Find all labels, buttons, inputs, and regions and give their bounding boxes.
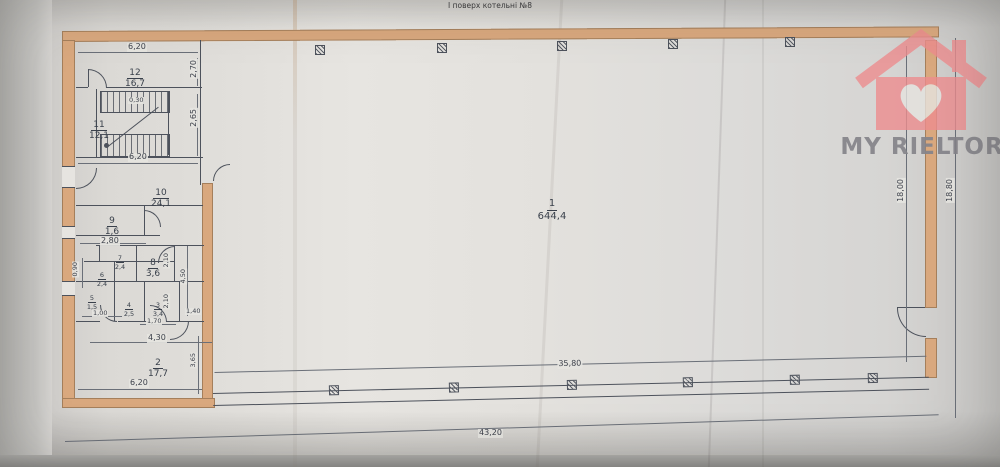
wall-right-lower (925, 338, 937, 378)
house-heart-icon (846, 26, 996, 134)
dimension-label: 4,50 (180, 268, 187, 284)
room-number: 2 (153, 358, 163, 369)
column-marker (790, 375, 800, 385)
dimension-label: 0,90 (72, 261, 79, 277)
room-label-3: 3 3,4 (145, 293, 171, 319)
room-area: 2,4 (90, 281, 114, 288)
wall-opening (62, 226, 75, 239)
paper-crease (293, 0, 297, 467)
room-area: 16,7 (119, 79, 151, 89)
room-area: 644,4 (528, 211, 576, 223)
dimension-label: 2,65 (190, 108, 199, 128)
dimension-label: 4,30 (147, 334, 167, 343)
dimension-label: 0,30 (128, 97, 144, 104)
dimension-line (187, 246, 188, 316)
column-marker (785, 37, 795, 47)
wall-opening (62, 281, 75, 296)
room-label-8: 8 3,6 (140, 251, 166, 280)
room-area: 24,1 (144, 199, 178, 209)
dimension-line (78, 52, 198, 53)
wall-line (76, 87, 88, 88)
stair-edge (168, 91, 169, 155)
room-number: 5 (88, 295, 96, 303)
photo-bottom-edge (0, 455, 1000, 467)
dimension-label: 18,80 (946, 178, 955, 203)
room-area: 3,6 (140, 269, 166, 279)
dimension-label: 43,20 (478, 429, 503, 438)
room-number: 10 (153, 188, 168, 199)
column-marker (683, 377, 693, 387)
dimension-label: 6,20 (127, 43, 147, 52)
dimension-label: 35,80 (557, 360, 582, 369)
wall-line (99, 245, 100, 261)
door-leaf (88, 69, 89, 87)
dimension-line (78, 389, 202, 390)
room-area: 1,5 (80, 304, 104, 311)
room-area: 1,6 (97, 227, 127, 237)
wall-left (62, 40, 75, 400)
dimension-label: 6,20 (128, 153, 148, 162)
room-label-1: 1 644,4 (528, 192, 576, 222)
room-number: 3 (154, 302, 162, 310)
dimension-line (82, 258, 83, 288)
wall-line (200, 40, 201, 185)
dimension-label: 18,00 (897, 178, 906, 203)
column-marker (868, 373, 878, 383)
paper-crease (762, 0, 764, 467)
wall-line (179, 281, 180, 321)
watermark-brand-text: MY RIELTOR (836, 134, 1000, 160)
dimension-label: 2,70 (190, 59, 199, 79)
column-marker (449, 382, 459, 392)
wall-block-right (202, 183, 213, 399)
wall-line (76, 321, 100, 322)
door-arc (88, 69, 107, 88)
room-number: 6 (98, 272, 106, 280)
room-label-7: 7 2,4 (108, 246, 132, 272)
wall-line (76, 205, 203, 206)
room-number: 4 (125, 302, 133, 310)
door-arc (76, 168, 97, 189)
dimension-label: 1,40 (185, 308, 201, 315)
room-label-12: 12 16,7 (119, 61, 151, 90)
dimension-label: 6,20 (129, 379, 149, 388)
door-arc (213, 164, 230, 181)
room-label-5: 5 1,5 (80, 286, 104, 312)
column-marker (437, 43, 447, 53)
dimension-label: 1,70 (146, 318, 162, 325)
room-area: 17,7 (140, 369, 176, 379)
hall-bottom-boundary: 35,80 (213, 377, 929, 394)
dimension-label: 2,80 (100, 237, 120, 246)
room-area: 2,5 (117, 311, 141, 318)
wall-opening (62, 166, 75, 188)
watermark-logo: MY RIELTOR (836, 24, 1000, 169)
room-area: 3,4 (145, 311, 171, 318)
column-marker (668, 39, 678, 49)
room-label-2: 2 17,7 (140, 351, 176, 380)
column-marker (315, 45, 325, 55)
door-arc (144, 210, 161, 227)
room-number: 11 (91, 120, 106, 131)
room-number: 8 (148, 258, 158, 269)
column-marker (329, 385, 339, 395)
wall-bottom-left-block (62, 398, 215, 408)
room-label-4: 4 2,5 (117, 293, 141, 319)
plan-title: І поверх котельні №8 (400, 1, 580, 10)
dimension-label: 3,65 (190, 352, 197, 368)
room-label-11: 11 12,1 (83, 113, 115, 142)
room-area: 12,1 (83, 131, 115, 141)
room-label-9: 9 1,6 (97, 209, 127, 238)
room-number: 9 (107, 216, 117, 227)
stair-arrow-dot (104, 143, 109, 148)
room-area: 2,4 (108, 264, 132, 271)
column-marker (557, 41, 567, 51)
column-marker (567, 380, 577, 390)
room-number: 7 (116, 255, 124, 263)
dimension-line (78, 163, 198, 164)
room-number: 12 (127, 68, 142, 79)
wall-top (62, 26, 939, 42)
wall-line (136, 245, 137, 281)
photo-canvas: І поверх котельні №8 (0, 0, 1000, 467)
room-number: 1 (547, 198, 557, 211)
door-arc (897, 308, 926, 337)
room-label-10: 10 24,1 (144, 181, 178, 210)
dimension-line (198, 336, 199, 394)
